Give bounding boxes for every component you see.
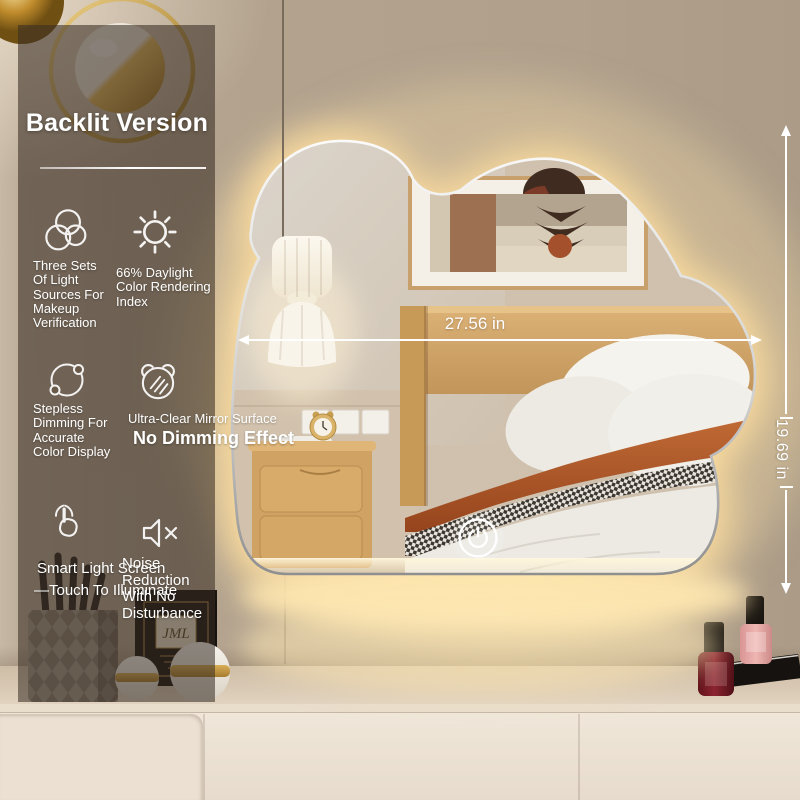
feature-sublabel: No Dimming Effect <box>133 429 303 449</box>
feature-panel: Backlit Version Three Sets Of Light Sour… <box>18 25 215 702</box>
touch-gesture-icon <box>44 501 90 547</box>
product-image: JML <box>0 0 800 800</box>
feature-label: Noise Reduction With No Disturbance <box>122 556 210 622</box>
feature-label: Ultra-Clear Mirror Surface <box>128 412 298 426</box>
touch-power-button[interactable] <box>452 512 504 564</box>
stepless-dimmer-icon <box>43 356 91 404</box>
height-dimension-line <box>785 490 787 588</box>
three-circles-icon <box>42 206 94 258</box>
feature-label: 66% Daylight Color Rendering Index <box>116 266 220 309</box>
width-dimension-label: 27.56 in <box>395 314 555 334</box>
reflected-alarm-clock <box>310 412 336 441</box>
feature-label: Stepless Dimming For Accurate Color Disp… <box>33 402 113 459</box>
feature-label: Three Sets Of Light Sources For Makeup V… <box>33 259 113 330</box>
panel-divider <box>40 167 206 169</box>
reflected-nightstand <box>248 441 376 568</box>
sun-icon <box>128 205 182 259</box>
mute-speaker-icon <box>135 509 183 557</box>
bear-mirror-icon <box>133 356 183 406</box>
panel-title: Backlit Version <box>12 109 222 138</box>
height-dimension-label: 19.69 in <box>772 419 790 489</box>
height-dimension-line <box>785 131 787 414</box>
width-dimension-line <box>244 339 756 341</box>
